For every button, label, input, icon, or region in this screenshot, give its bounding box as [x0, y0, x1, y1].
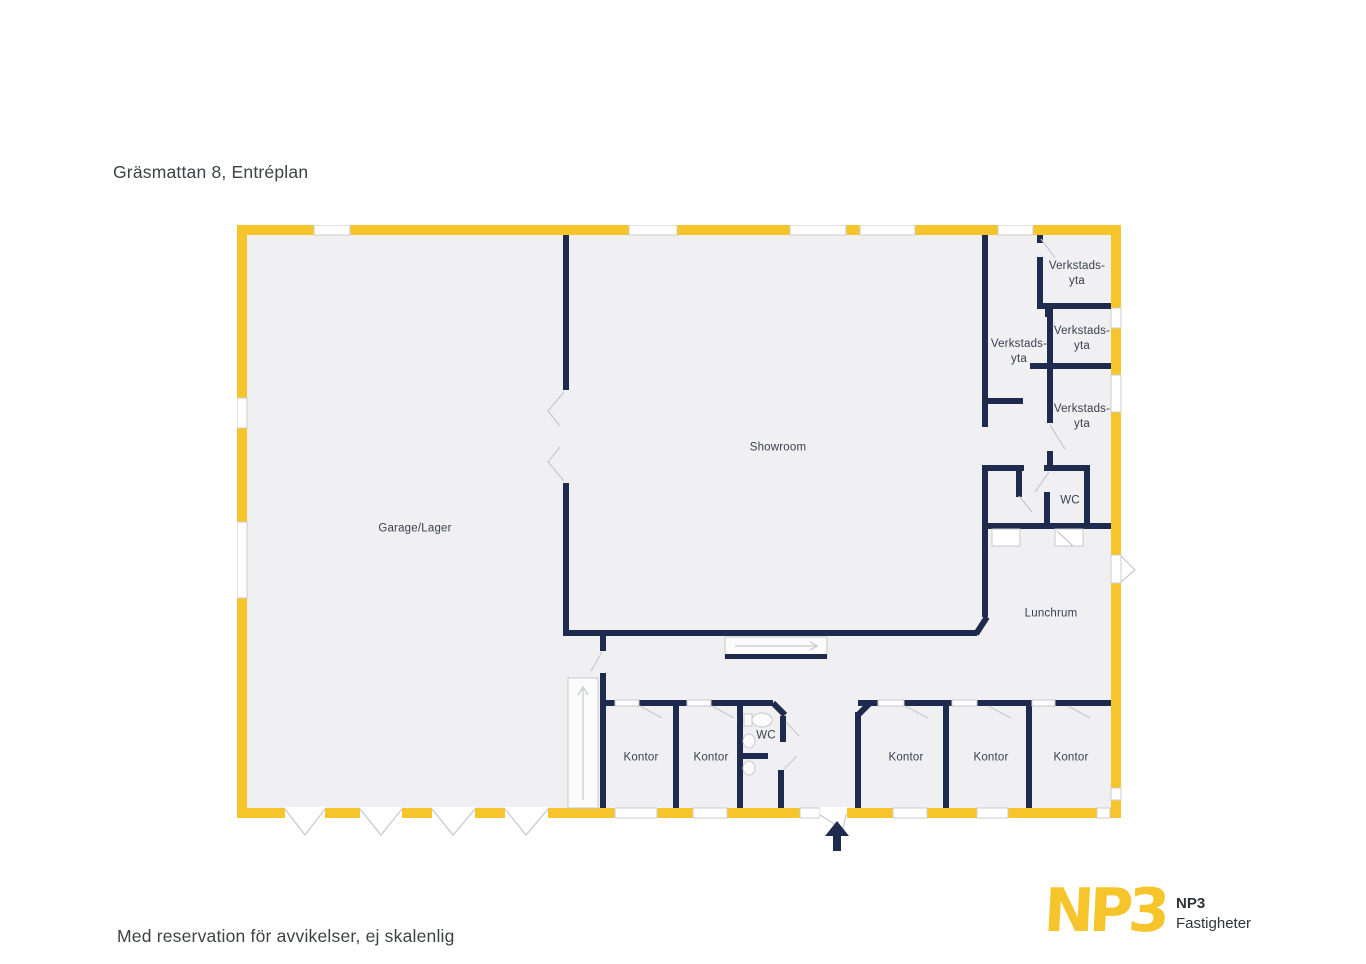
room-label-kontor-2: Kontor — [693, 751, 728, 766]
room-label-kontor-3: Kontor — [888, 751, 923, 766]
sliding-door-icon — [725, 637, 827, 659]
np3-logo-subname: Fastigheter — [1176, 914, 1251, 934]
room-label-kontor-1: Kontor — [623, 751, 658, 766]
disclaimer-note: Med reservation för avvikelser, ej skale… — [117, 926, 455, 947]
toilet-icon — [744, 713, 772, 727]
np3-logo-text: NP3 Fastigheter — [1176, 894, 1251, 933]
room-label-wc-bottom: WC — [756, 729, 776, 744]
np3-logo-name: NP3 — [1176, 894, 1251, 914]
np3-logo-icon: NP3 — [1042, 876, 1167, 946]
floor-plan-drawing — [237, 225, 1147, 885]
room-label-verkstad-low: Verkstads- yta — [1054, 402, 1110, 432]
room-label-verkstad-corridor: Verkstads- yta — [991, 337, 1047, 367]
room-label-showroom: Showroom — [750, 441, 807, 456]
room-label-lunchrum: Lunchrum — [1025, 607, 1078, 622]
room-label-verkstad-mid: Verkstads- yta — [1054, 324, 1110, 354]
room-label-kontor-5: Kontor — [1053, 751, 1088, 766]
page-title: Gräsmattan 8, Entréplan — [113, 162, 308, 183]
room-label-garage: Garage/Lager — [378, 522, 451, 537]
room-label-verkstad-top: Verkstads- yta — [1049, 259, 1105, 289]
entrance-arrow-icon — [825, 821, 849, 851]
room-label-kontor-4: Kontor — [973, 751, 1008, 766]
floor-plan-page: Gräsmattan 8, Entréplan — [0, 0, 1366, 964]
stairs-icon — [568, 678, 598, 808]
room-label-wc-right: WC — [1060, 494, 1080, 509]
